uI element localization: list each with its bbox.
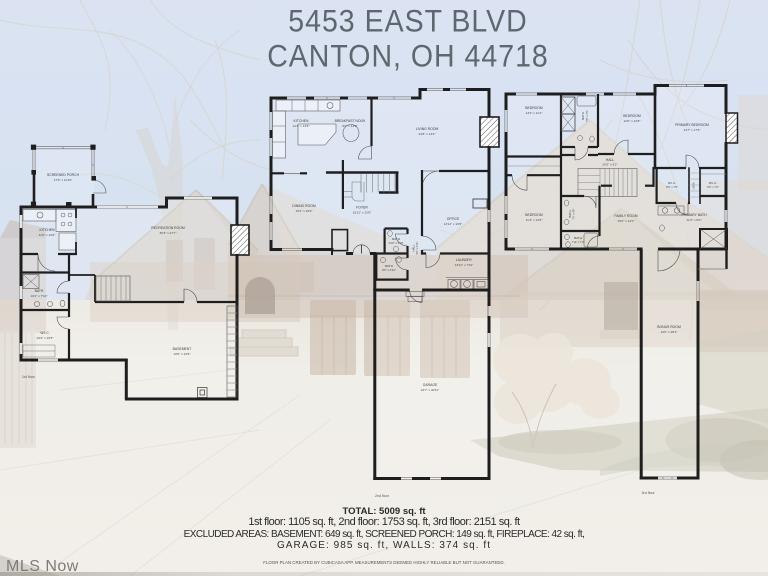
svg-text:OFFICE: OFFICE <box>447 217 460 221</box>
svg-text:16'5" x 23'8": 16'5" x 23'8" <box>174 352 191 356</box>
svg-text:15'2" x 16'9": 15'2" x 16'9" <box>296 209 313 213</box>
svg-text:16'11" x 12'6": 16'11" x 12'6" <box>353 211 371 215</box>
svg-text:KITCHEN: KITCHEN <box>40 228 55 232</box>
svg-text:11'3" x 13'3": 11'3" x 13'3" <box>526 218 543 222</box>
svg-text:24'8" x 13'4": 24'8" x 13'4" <box>419 132 436 136</box>
svg-text:7'11" x 7'2": 7'11" x 7'2" <box>571 240 584 244</box>
svg-text:4'10" x 3'10": 4'10" x 3'10" <box>388 241 403 245</box>
svg-text:HALL: HALL <box>412 244 416 251</box>
svg-text:12'0" x 48'2": 12'0" x 48'2" <box>661 330 678 334</box>
svg-text:11'3" x 8'0": 11'3" x 8'0" <box>686 218 701 222</box>
svg-text:12'1" x 13'8": 12'1" x 13'8" <box>293 124 310 128</box>
svg-text:10'2" x 10'5": 10'2" x 10'5" <box>37 336 54 340</box>
svg-text:20'5" x 9'2": 20'5" x 9'2" <box>602 163 617 167</box>
svg-text:36'3" x 27'7": 36'3" x 27'7" <box>160 231 177 235</box>
svg-text:13'11" x 10'9": 13'11" x 10'9" <box>444 222 462 226</box>
svg-text:W.I.C.: W.I.C. <box>668 181 676 185</box>
svg-text:6'5" x 7'9": 6'5" x 7'9" <box>666 185 678 189</box>
svg-text:14'7" x 17'5": 14'7" x 17'5" <box>684 128 701 132</box>
svg-text:15'6" x 12'0": 15'6" x 12'0" <box>618 219 635 223</box>
svg-text:FAMILY ROOM: FAMILY ROOM <box>614 214 637 218</box>
svg-text:3rd floor: 3rd floor <box>642 491 656 495</box>
svg-text:7'9" x 7'5": 7'9" x 7'5" <box>585 110 589 122</box>
svg-text:5'6" x 7'0": 5'6" x 7'0" <box>707 185 719 189</box>
svg-text:KITCHEN: KITCHEN <box>294 119 309 123</box>
svg-text:PRIMARY BEDROOM: PRIMARY BEDROOM <box>675 123 709 127</box>
svg-text:FOYER: FOYER <box>356 206 368 210</box>
svg-text:BASEMENT: BASEMENT <box>173 347 192 351</box>
svg-text:9'0" x 4'10": 9'0" x 4'10" <box>415 242 419 255</box>
svg-text:BREAKFAST NOOK: BREAKFAST NOOK <box>335 119 367 123</box>
svg-text:BEDROOM: BEDROOM <box>623 114 641 118</box>
svg-text:RECREATION ROOM: RECREATION ROOM <box>151 226 185 230</box>
svg-text:10'2" x 7'10": 10'2" x 7'10" <box>31 294 48 298</box>
svg-text:LINEN: LINEN <box>693 182 696 189</box>
svg-text:6'5" x 4'10": 6'5" x 4'10" <box>382 268 396 272</box>
svg-text:LAUNDRY: LAUNDRY <box>456 258 473 262</box>
svg-text:GARAGE: GARAGE <box>423 383 438 387</box>
svg-text:LIVING ROOM: LIVING ROOM <box>416 127 439 131</box>
svg-text:2nd floor: 2nd floor <box>375 494 390 498</box>
svg-text:BATH: BATH <box>568 210 572 217</box>
svg-text:HALL: HALL <box>606 158 615 162</box>
svg-text:BATH: BATH <box>581 112 585 120</box>
svg-text:11'6" x 12'6": 11'6" x 12'6" <box>39 233 56 237</box>
svg-text:13'2" x 11'1": 13'2" x 11'1" <box>526 111 543 115</box>
svg-text:W.I.C.: W.I.C. <box>709 181 717 185</box>
svg-text:1st floor: 1st floor <box>22 375 36 379</box>
svg-text:BATH: BATH <box>35 289 44 293</box>
svg-text:BONUS ROOM: BONUS ROOM <box>657 325 681 329</box>
svg-text:SCREENED PORCH: SCREENED PORCH <box>47 173 80 177</box>
svg-text:BEDROOM: BEDROOM <box>525 106 543 110</box>
svg-text:12'0" x 12'8": 12'0" x 12'8" <box>624 119 641 123</box>
svg-text:BEDROOM: BEDROOM <box>525 213 543 217</box>
svg-text:DINING ROOM: DINING ROOM <box>292 204 316 208</box>
svg-text:7'0" x 4'9": 7'0" x 4'9" <box>572 208 576 219</box>
svg-text:13'11" x 7'10": 13'11" x 7'10" <box>455 263 473 267</box>
svg-text:W.I.C.: W.I.C. <box>40 331 49 335</box>
svg-text:17'6" x 11'10": 17'6" x 11'10" <box>54 178 72 182</box>
svg-text:24'7" x 40'11": 24'7" x 40'11" <box>421 388 439 392</box>
svg-text:PRIMARY BATH: PRIMARY BATH <box>681 213 707 217</box>
svg-text:8'0" x 13'8": 8'0" x 13'8" <box>342 124 357 128</box>
svg-text:BATH: BATH <box>574 236 582 240</box>
